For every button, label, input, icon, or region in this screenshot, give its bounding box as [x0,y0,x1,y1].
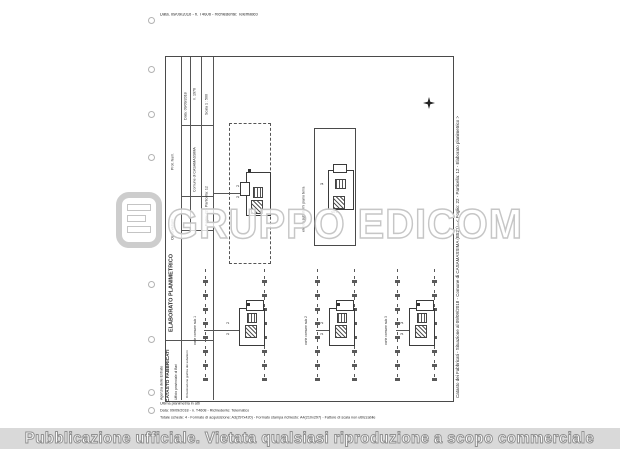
hatched-area [415,325,427,338]
sub-number: 74 [320,333,323,336]
hatched-area [245,325,257,338]
sub-number: 75 [400,322,403,325]
stamp-province: Ufficio provinciale di Bari [175,364,178,400]
right-margin-caption: Catasto dei Fabbricati - Situazione al 0… [456,116,461,398]
strip-title: ELABORATO PLANIMETRICO [169,254,175,332]
logo-bar [127,215,146,222]
request-header-line: Data. 09/09/2018 - n. T4608 - Richiedent… [160,13,258,17]
boundary-line [395,269,400,381]
sub-number: 76 [400,333,403,336]
bay-caption: corte comune sub 3 [385,316,388,345]
building-marker [337,303,340,306]
gruppo-edicom-watermark: GRUPPO EDICOM [167,201,523,247]
footer-line-2: Data: 09/09/2018 - n. T4608 - Richiedent… [160,409,249,413]
sub-number: 78 [320,183,323,186]
strip-date: Data: 09/09/2018 [184,92,188,120]
building-step [333,164,347,173]
publication-notice-band: Pubblicazione ufficiale. Vietata qualsia… [0,428,620,449]
boundary-line [315,269,320,381]
scanned-cadastral-document: Data. 09/09/2018 - n. T4608 - Richiedent… [0,0,620,450]
sub-number: 72 [226,333,229,336]
punch-hole [148,66,155,73]
stairs-symbol [253,187,263,198]
sub-number: 71 [236,185,239,188]
punch-hole [148,407,155,414]
connector-line [316,330,329,331]
building-marker [247,303,250,306]
bay-caption: corte comune sub 1 [194,316,197,345]
stamp-agency: Agenzia delle Entrate [160,366,164,400]
logo-bar [127,226,151,233]
boundary-line [203,269,208,381]
bay-caption: corte comune sub 2 [305,316,308,345]
punch-hole [148,111,155,118]
strip-num: n. 1976 [193,88,197,100]
stairs-symbol [337,313,347,323]
building-step [240,182,250,196]
strip-subalterni: Dimostrazione grafica dei subalterni [186,350,189,398]
connector-line [396,330,409,331]
punch-hole [148,17,155,24]
edicom-logo-icon [116,192,162,248]
stairs-symbol [335,179,346,189]
footer-line-1: Ultima planimetria in atti [160,402,200,406]
stamp-office: CATASTO FABBRICATI [166,350,171,402]
building-marker [248,169,251,172]
sub-number: 73 [320,322,323,325]
connector-line [204,330,239,331]
strip-comune: Comune di CASAMASSIMA [193,147,197,192]
stairs-symbol [247,313,257,323]
sub-number: 71 [226,322,229,325]
publication-notice-text: Pubblicazione ufficiale. Vietata qualsia… [25,430,594,448]
strip-scale: Scala 1 : 500 [205,94,209,115]
logo-bar [127,204,151,211]
sub-number: 72 [236,196,239,199]
strip-prot: Prot. Num. [171,153,175,170]
stairs-symbol [417,313,427,323]
north-arrow-icon [423,97,435,109]
punch-hole [148,154,155,161]
punch-hole [148,281,155,288]
hatched-area [335,325,347,338]
punch-hole [148,389,155,396]
footer-line-3: Totale schede: 4 - Formato di acquisizio… [160,416,375,420]
punch-hole [148,336,155,343]
strip-line [182,125,213,126]
building-marker [417,303,420,306]
